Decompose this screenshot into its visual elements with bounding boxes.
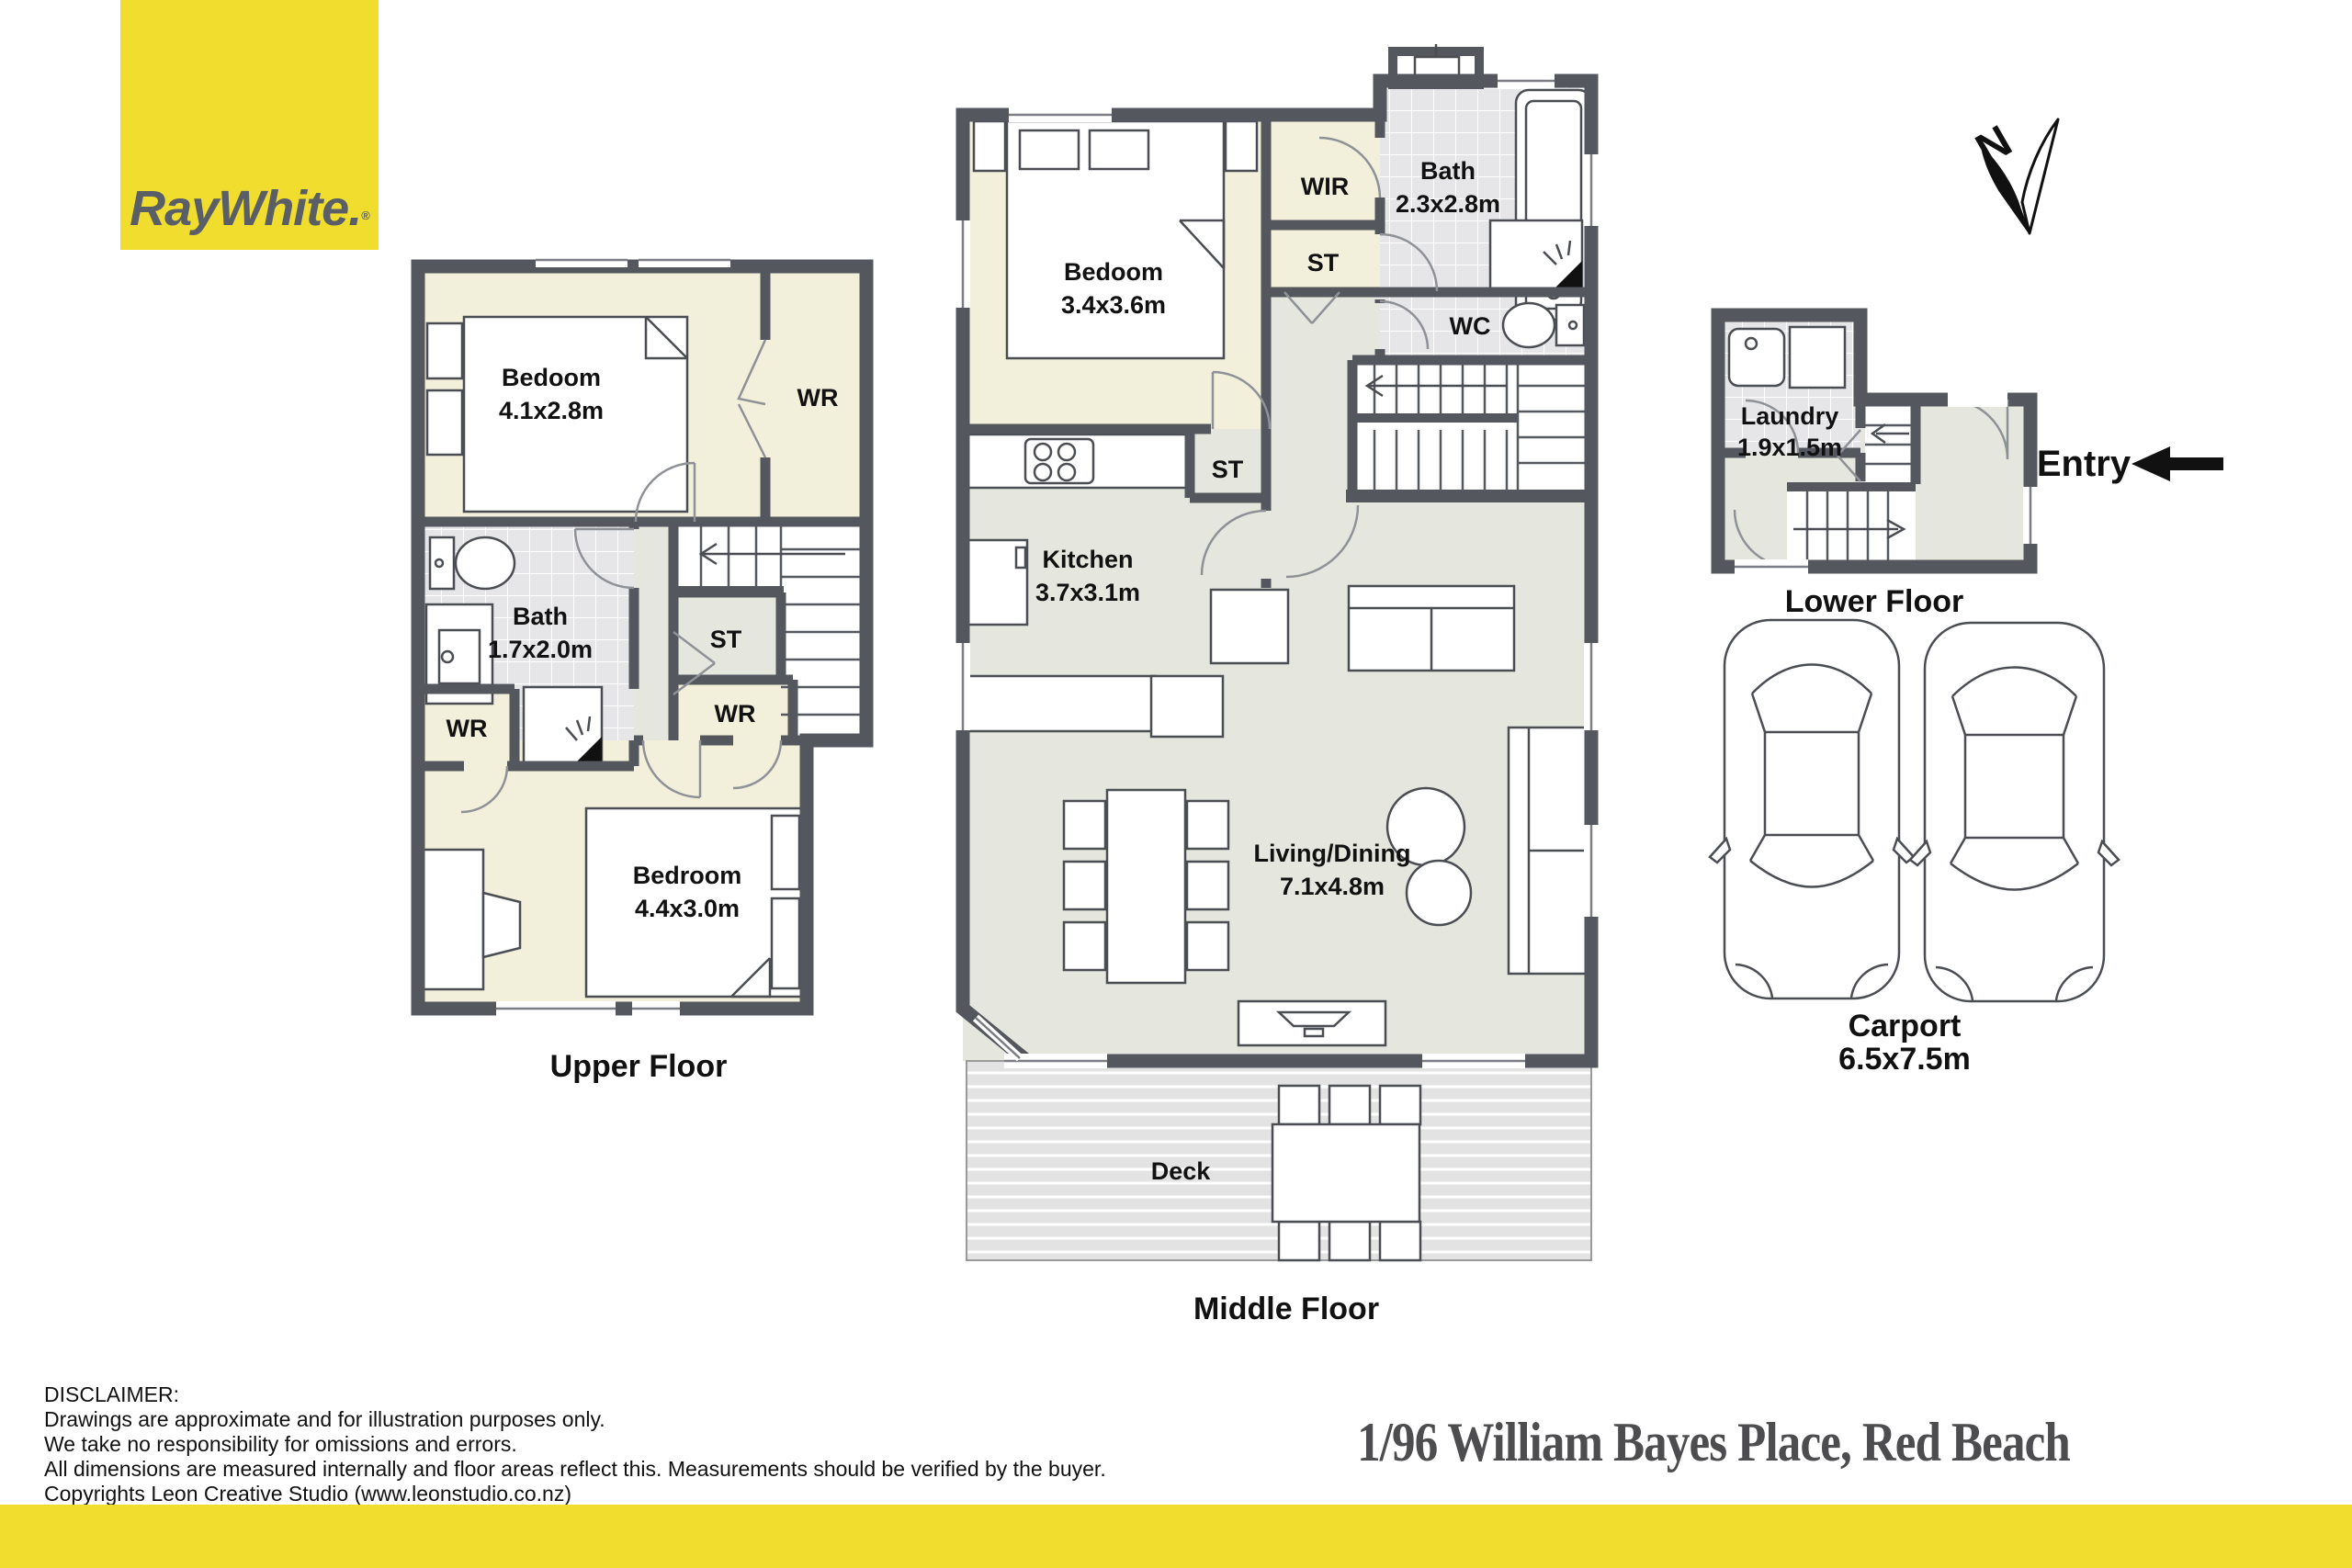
middle-sofa	[1509, 728, 1589, 974]
middle-wir-label: WIR	[1301, 173, 1349, 200]
upper-shower	[524, 687, 602, 764]
middle-st1-label: ST	[1307, 249, 1340, 276]
north-arrow-icon: N	[1968, 117, 2058, 233]
middle-bed	[974, 121, 1257, 358]
laundry-dims: 1.9x1.5m	[1737, 434, 1842, 461]
lower-floor-plan: Laundry 1.9x1.5m Lower Floor	[1718, 315, 2038, 619]
upper-bath-dims: 1.7x2.0m	[488, 636, 593, 663]
disclaimer-line: Drawings are approximate and for illustr…	[44, 1407, 1106, 1432]
middle-living-label: Living/Dining	[1254, 840, 1411, 867]
middle-tv-unit	[1238, 1001, 1385, 1045]
floorplan-canvas: Bedoom 4.1x2.8m WR Bath 1.7x2.0m ST WR W…	[0, 0, 2352, 1568]
entry-label: Entry	[2037, 444, 2131, 484]
middle-kitchen-bench	[963, 676, 1156, 731]
disclaimer-line: Copyrights Leon Creative Studio (www.leo…	[44, 1482, 1106, 1506]
entry-annotation: Entry	[2037, 444, 2223, 484]
entry-arrow-icon	[2131, 446, 2223, 481]
disclaimer-line: DISCLAIMER:	[44, 1382, 1106, 1407]
car-2	[1910, 623, 2119, 1001]
middle-wc-label: WC	[1450, 312, 1491, 340]
bottom-yellow-bar	[0, 1505, 2352, 1568]
upper-wr1-label: WR	[797, 384, 839, 412]
deck-label: Deck	[1151, 1157, 1212, 1185]
middle-kitchen-label: Kitchen	[1042, 546, 1133, 573]
upper-bedroom1-label: Bedoom	[502, 364, 601, 391]
middle-shower	[1490, 220, 1582, 290]
upper-bath-label: Bath	[513, 603, 568, 630]
lower-floor-caption: Lower Floor	[1785, 584, 1964, 619]
upper-bedroom2-label: Bedroom	[633, 862, 742, 889]
upper-hall	[634, 522, 673, 740]
middle-kitchen-island	[1151, 676, 1223, 737]
laundry-label: Laundry	[1741, 402, 1839, 430]
disclaimer-line: All dimensions are measured internally a…	[44, 1457, 1106, 1482]
upper-bedroom2-dims: 4.4x3.0m	[635, 895, 740, 922]
floorplan-page: RayWhite.®	[0, 0, 2352, 1568]
middle-kitchen-counter	[963, 434, 1190, 488]
middle-st2-label: ST	[1212, 456, 1244, 483]
upper-wr2-label: WR	[447, 715, 488, 742]
middle-dining-set	[1064, 790, 1228, 983]
property-address: 1/96 William Bayes Place, Red Beach	[1319, 1411, 2109, 1474]
car-1	[1710, 620, 1914, 998]
middle-living-floor	[963, 429, 1591, 1061]
deck-dining-set	[1272, 1086, 1420, 1260]
middle-bedroom-label: Bedoom	[1064, 258, 1163, 286]
north-label: N	[1968, 117, 2020, 175]
middle-loveseat	[1349, 586, 1514, 671]
washing-machine	[1790, 327, 1845, 388]
middle-floor-caption: Middle Floor	[1193, 1292, 1379, 1326]
middle-stairs-area	[1352, 360, 1591, 490]
middle-bedroom-dims: 3.4x3.6m	[1061, 291, 1166, 319]
middle-bath-dims: 2.3x2.8m	[1396, 190, 1500, 218]
middle-living-dims: 7.1x4.8m	[1280, 873, 1385, 900]
middle-kitchen-peninsula	[1211, 590, 1288, 663]
disclaimer-block: DISCLAIMER: Drawings are approximate and…	[44, 1382, 1106, 1506]
upper-floor-caption: Upper Floor	[550, 1049, 728, 1084]
middle-wc-toilet	[1503, 303, 1584, 347]
upper-toilet	[430, 537, 514, 589]
middle-pouf-2	[1407, 861, 1471, 925]
upper-wr3-label: WR	[715, 700, 756, 728]
middle-floor-plan: Bedoom 3.4x3.6m WIR ST Bath 2.3x2.8m WC …	[955, 44, 1599, 1326]
middle-fridge	[967, 540, 1027, 625]
upper-floor-plan: Bedoom 4.1x2.8m WR Bath 1.7x2.0m ST WR W…	[418, 0, 963, 1084]
carport: Carport 6.5x7.5m	[1710, 620, 2119, 1077]
middle-wir-room	[1266, 115, 1380, 225]
upper-st-label: ST	[710, 626, 742, 653]
laundry-sink	[1729, 329, 1784, 386]
middle-kitchen-dims: 3.7x3.1m	[1035, 579, 1140, 606]
middle-bath-label: Bath	[1420, 157, 1476, 185]
carport-dims: 6.5x7.5m	[1838, 1042, 1971, 1077]
upper-bedroom1-dims: 4.1x2.8m	[499, 397, 604, 424]
carport-label: Carport	[1849, 1009, 1962, 1043]
disclaimer-line: We take no responsibility for omissions …	[44, 1432, 1106, 1457]
